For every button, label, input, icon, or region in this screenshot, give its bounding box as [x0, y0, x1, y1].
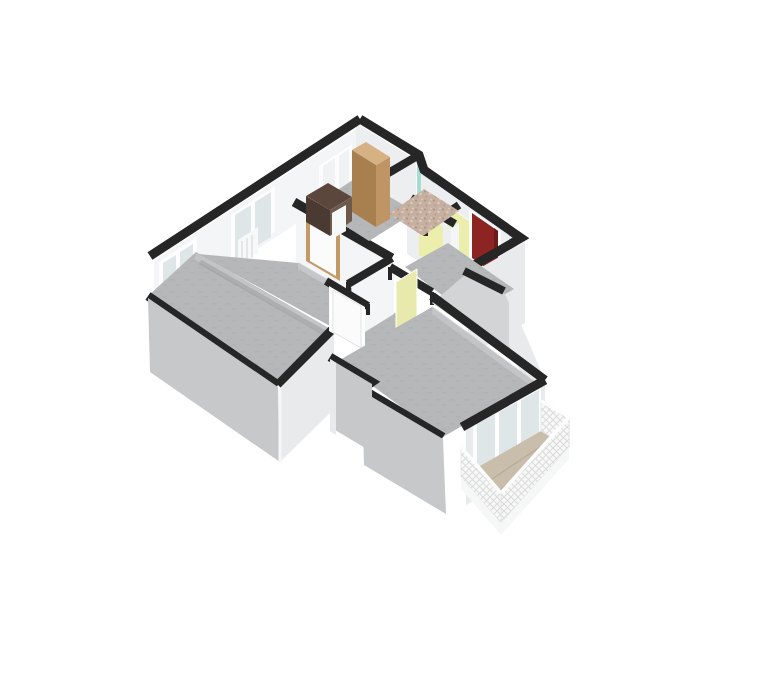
floor-plan-render — [0, 0, 768, 675]
wall-cut-edge — [366, 304, 370, 315]
wardrobe — [352, 142, 390, 227]
doorway-jamb — [388, 267, 392, 280]
wardrobe-side — [376, 157, 390, 227]
exterior-corner-light — [330, 359, 336, 435]
floor-plan-svg — [0, 0, 768, 675]
